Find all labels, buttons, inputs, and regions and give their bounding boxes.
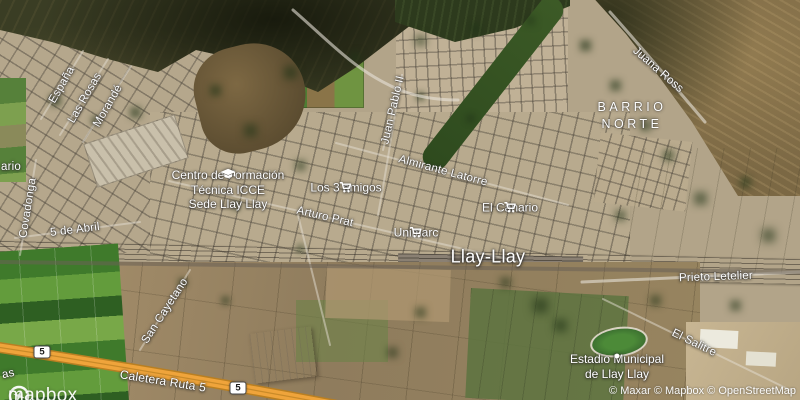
map-canvas[interactable]: España Las Rosas Morandé ario Covadonga … bbox=[0, 0, 800, 400]
map-attribution[interactable]: © Maxar © Mapbox © OpenStreetMap bbox=[609, 385, 796, 397]
district-label-line2: NORTE bbox=[598, 116, 667, 133]
street-label-partial-ario: ario bbox=[1, 161, 21, 173]
poi-unimarc: Unimarc bbox=[394, 226, 439, 240]
grocery-cart-icon bbox=[340, 181, 353, 193]
school-icon bbox=[221, 169, 236, 180]
street-label-prieto-letelier: Prieto Letelier bbox=[679, 270, 753, 285]
grocery-cart-icon bbox=[409, 226, 422, 238]
poi-label-line2: de Llay Llay bbox=[585, 368, 649, 382]
poi-los-3-amigos: Los 3 amigos bbox=[310, 181, 381, 195]
district-label-barrio-norte: BARRIO NORTE bbox=[598, 99, 667, 133]
poi-centro-formacion: Centro de Formación Técnica ICCE Sede Ll… bbox=[172, 169, 285, 212]
poi-estadio-municipal: Estadio Municipal de Llay Llay bbox=[570, 353, 664, 381]
city-label-llay-llay: Llay-Llay bbox=[451, 247, 526, 268]
street-label-partial-as: as bbox=[1, 367, 16, 381]
route-5-shield: 5 bbox=[230, 382, 247, 395]
route-5-shield-number: 5 bbox=[39, 347, 44, 357]
mapbox-wordmark: mapbox bbox=[8, 385, 77, 400]
dot-icon bbox=[614, 353, 620, 359]
grocery-cart-icon bbox=[504, 201, 517, 213]
route-5-shield: 5 bbox=[34, 346, 51, 359]
route-5-shield-number: 5 bbox=[235, 383, 240, 393]
poi-label-line3: Sede Llay Llay bbox=[189, 198, 268, 212]
poi-label-line2: Técnica ICCE bbox=[191, 183, 265, 197]
poi-el-canario: El Canario bbox=[482, 201, 538, 215]
district-label-line1: BARRIO bbox=[598, 99, 667, 116]
